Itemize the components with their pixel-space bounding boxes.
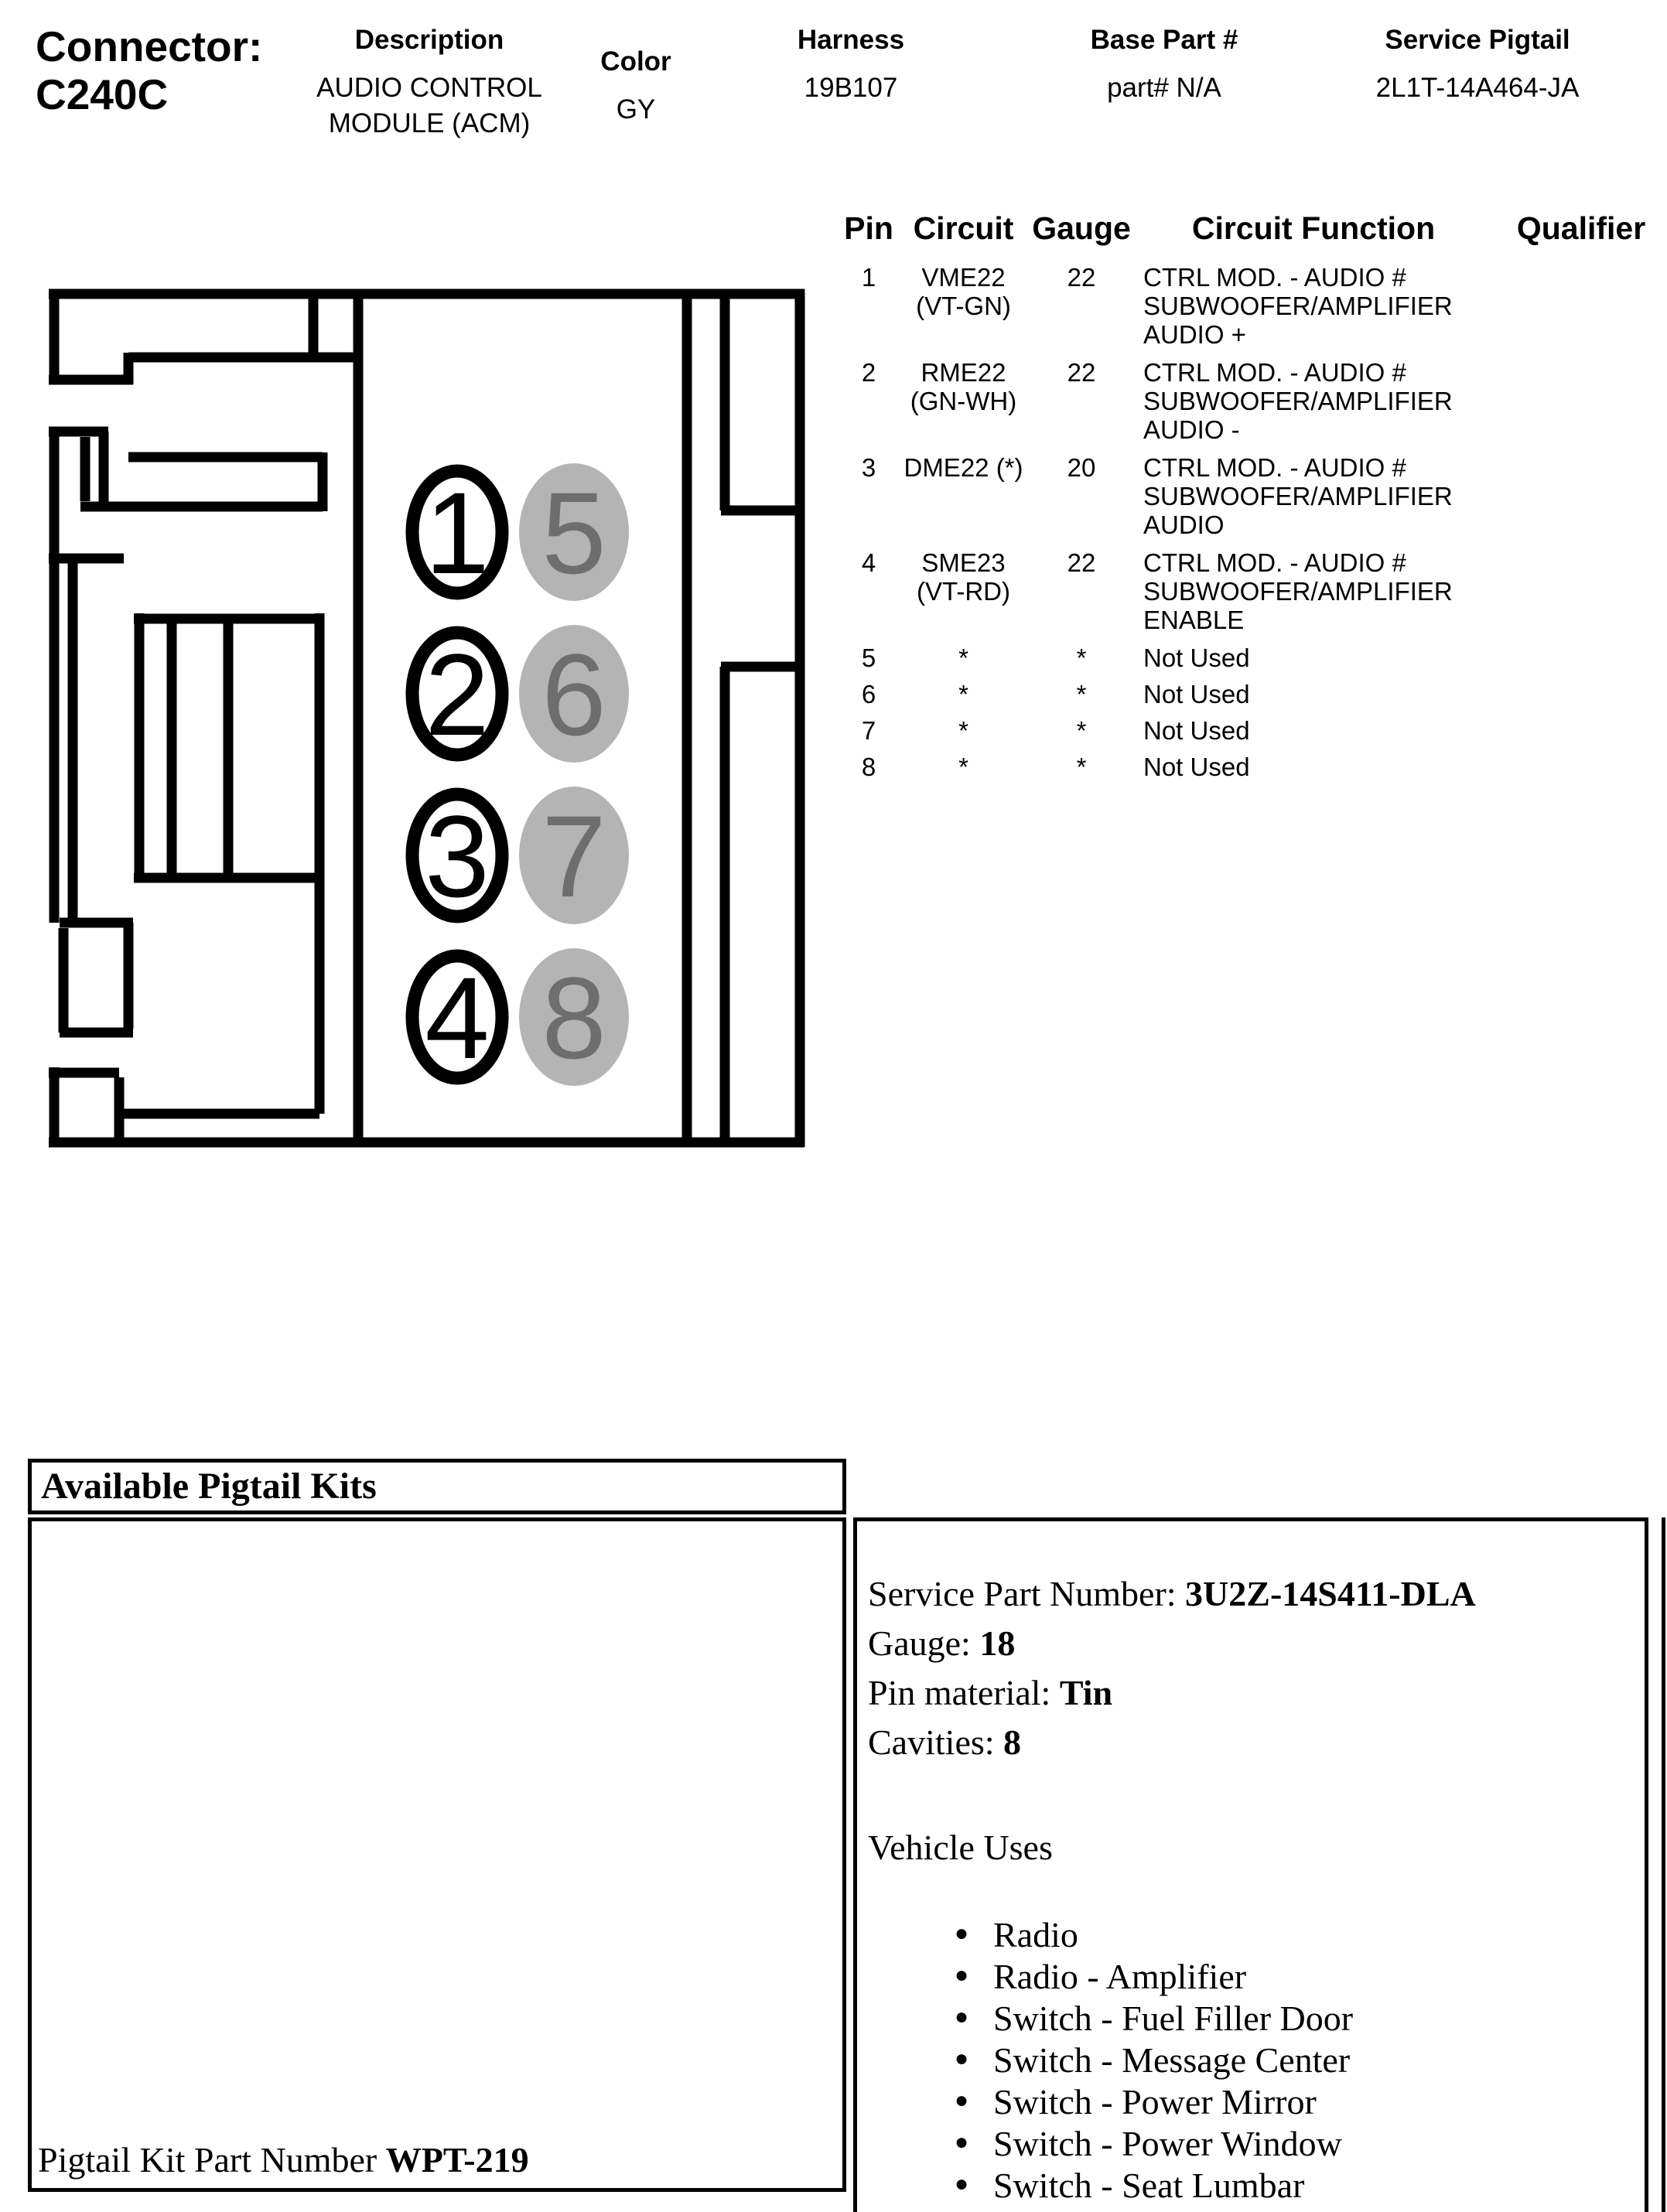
- vehicle-use-text: Switch - Power Mirror: [993, 2082, 1317, 2122]
- circuit-cell: VME22(VT-GN): [896, 263, 1031, 349]
- pin-table-row: 7**Not Used: [842, 716, 1667, 745]
- connector-pinout-sheet: Connector: C240C Description AUDIO CONTR…: [0, 0, 1667, 2212]
- pin-table-row: 1VME22(VT-GN)22CTRL MOD. - AUDIO #SUBWOO…: [842, 263, 1667, 349]
- available-pigtail-kits-title: Available Pigtail Kits: [32, 1463, 842, 1511]
- service-pigtail-label: Service Pigtail: [1346, 25, 1609, 56]
- vehicle-use-item: ●Switch - Power Mirror: [868, 2081, 1632, 2123]
- pin-material-label: Pin material:: [868, 1673, 1060, 1712]
- bullet-icon: ●: [955, 2038, 968, 2080]
- circuit-cell: *: [896, 753, 1031, 781]
- pigtail-kit-part-number-value: WPT-219: [386, 2140, 529, 2180]
- bullet-icon: ●: [955, 1913, 968, 1954]
- gauge-line: Gauge: 18: [868, 1619, 1632, 1668]
- connector-diagram: 51627384: [31, 272, 820, 1158]
- harness-value: 19B107: [743, 73, 959, 104]
- circuit-function-cell: CTRL MOD. - AUDIO #SUBWOOFER/AMPLIFIERAU…: [1132, 358, 1495, 444]
- circuit-function-cell: Not Used: [1132, 753, 1495, 781]
- rear-cavity-number-6: 6: [541, 630, 606, 760]
- rear-cavity-number-5: 5: [541, 468, 606, 598]
- rear-cavity-number-8: 8: [541, 953, 606, 1083]
- cavities-value: 8: [1003, 1722, 1021, 1762]
- circuit-cell: RME22(GN-WH): [896, 358, 1031, 444]
- gauge-cell: *: [1031, 643, 1132, 672]
- vehicle-use-item: ●Switch - Message Center: [868, 2040, 1632, 2081]
- circuit-function-col-header: Circuit Function: [1132, 210, 1495, 246]
- front-cavity-number-1: 1: [425, 468, 489, 598]
- bullet-icon: ●: [955, 2163, 968, 2205]
- service-part-number-label: Service Part Number:: [868, 1574, 1185, 1613]
- circuit-function-cell: Not Used: [1132, 643, 1495, 672]
- bullet-icon: ●: [955, 2205, 968, 2212]
- gauge-cell: *: [1031, 753, 1132, 781]
- pin-table-row: 5**Not Used: [842, 643, 1667, 672]
- pin-material-value: Tin: [1060, 1673, 1112, 1712]
- vehicle-use-item: ●Switch - Power Window: [868, 2123, 1632, 2165]
- pigtail-kit-box: Pigtail Kit Part Number WPT-219: [28, 1517, 846, 2192]
- pigtail-kit-part-number-line: Pigtail Kit Part Number WPT-219: [38, 2139, 529, 2180]
- vehicle-use-text: Switch - Seat Lumbar: [993, 2166, 1304, 2205]
- circuit-function-cell: Not Used: [1132, 680, 1495, 708]
- gauge-value: 18: [979, 1623, 1015, 1663]
- circuit-col-header: Circuit: [896, 210, 1031, 246]
- pin-col-header: Pin: [842, 210, 896, 246]
- base-part-value: part# N/A: [1040, 73, 1288, 104]
- pigtail-kit-part-number-label: Pigtail Kit Part Number: [38, 2140, 386, 2180]
- gauge-cell: 22: [1031, 263, 1132, 349]
- circuit-cell: *: [896, 716, 1031, 745]
- pin-table: Pin Circuit Gauge Circuit Function Quali…: [842, 210, 1667, 789]
- description-value-line1: AUDIO CONTROL: [298, 73, 561, 104]
- circuit-function-cell: CTRL MOD. - AUDIO #SUBWOOFER/AMPLIFIERAU…: [1132, 263, 1495, 349]
- qualifier-cell: [1495, 548, 1667, 634]
- vehicle-use-text: Radio - Amplifier: [993, 1957, 1246, 1996]
- description-label: Description: [298, 25, 561, 56]
- vehicle-use-item: ●Switch - Fuel Filler Door: [868, 1998, 1632, 2040]
- qualifier-cell: [1495, 453, 1667, 539]
- pin-table-body: 1VME22(VT-GN)22CTRL MOD. - AUDIO #SUBWOO…: [842, 263, 1667, 781]
- pin-number-cell: 4: [842, 548, 896, 634]
- pin-table-row: 3DME22 (*)20CTRL MOD. - AUDIO #SUBWOOFER…: [842, 453, 1667, 539]
- pin-table-row: 2RME22(GN-WH)22CTRL MOD. - AUDIO #SUBWOO…: [842, 358, 1667, 444]
- bullet-icon: ●: [955, 2122, 968, 2163]
- gauge-col-header: Gauge: [1031, 210, 1132, 246]
- pin-table-row: 4SME23(VT-RD)22CTRL MOD. - AUDIO #SUBWOO…: [842, 548, 1667, 634]
- vehicle-use-text: Switch - Power Window: [993, 2124, 1342, 2163]
- bullet-icon: ●: [955, 1954, 968, 1996]
- qualifier-cell: [1495, 643, 1667, 672]
- vehicle-use-text: Switch - Steering Column Tilt/Telescope: [993, 2207, 1574, 2212]
- front-cavity-number-4: 4: [425, 953, 489, 1083]
- cavities-line: Cavities: 8: [868, 1718, 1632, 1767]
- pin-table-row: 8**Not Used: [842, 753, 1667, 781]
- pin-number-cell: 7: [842, 716, 896, 745]
- connector-label: Connector:: [36, 23, 262, 70]
- cavities-label: Cavities:: [868, 1722, 1003, 1762]
- gauge-cell: 20: [1031, 453, 1132, 539]
- vehicle-use-item: ●Switch - Steering Column Tilt/Telescope: [868, 2207, 1632, 2212]
- gauge-label: Gauge:: [868, 1623, 979, 1663]
- circuit-function-cell: CTRL MOD. - AUDIO #SUBWOOFER/AMPLIFIEREN…: [1132, 548, 1495, 634]
- harness-label: Harness: [743, 25, 959, 56]
- connector-id: C240C: [36, 71, 168, 118]
- gauge-cell: *: [1031, 716, 1132, 745]
- pin-table-header-row: Pin Circuit Gauge Circuit Function Quali…: [842, 210, 1667, 246]
- service-part-number-line: Service Part Number: 3U2Z-14S411-DLA: [868, 1569, 1632, 1619]
- service-part-detail-box: Service Part Number: 3U2Z-14S411-DLA Gau…: [853, 1517, 1648, 2212]
- vehicle-use-text: Radio: [993, 1915, 1078, 1954]
- qualifier-cell: [1495, 358, 1667, 444]
- vehicle-use-item: ●Radio: [868, 1914, 1632, 1956]
- cavity-pin-glyphs: 51627384: [412, 463, 629, 1086]
- qualifier-cell: [1495, 753, 1667, 781]
- gauge-cell: 22: [1031, 548, 1132, 634]
- available-pigtail-kits-box: Available Pigtail Kits: [28, 1459, 846, 1514]
- qualifier-cell: [1495, 680, 1667, 708]
- circuit-function-cell: CTRL MOD. - AUDIO #SUBWOOFER/AMPLIFIERAU…: [1132, 453, 1495, 539]
- pin-number-cell: 1: [842, 263, 896, 349]
- pin-number-cell: 6: [842, 680, 896, 708]
- front-cavity-number-3: 3: [425, 791, 489, 921]
- pin-material-line: Pin material: Tin: [868, 1668, 1632, 1718]
- circuit-cell: DME22 (*): [896, 453, 1031, 539]
- pin-number-cell: 3: [842, 453, 896, 539]
- vehicle-use-item: ●Radio - Amplifier: [868, 1956, 1632, 1998]
- service-part-number-value: 3U2Z-14S411-DLA: [1185, 1574, 1476, 1613]
- circuit-cell: *: [896, 680, 1031, 708]
- pin-number-cell: 2: [842, 358, 896, 444]
- qualifier-cell: [1495, 263, 1667, 349]
- bullet-icon: ●: [955, 1996, 968, 2038]
- base-part-label: Base Part #: [1040, 25, 1288, 56]
- color-label: Color: [566, 46, 705, 77]
- rear-cavity-number-7: 7: [541, 791, 606, 921]
- gauge-cell: 22: [1031, 358, 1132, 444]
- pin-table-row: 6**Not Used: [842, 680, 1667, 708]
- qualifier-cell: [1495, 716, 1667, 745]
- vehicle-use-text: Switch - Message Center: [993, 2040, 1350, 2080]
- description-value-line2: MODULE (ACM): [298, 108, 561, 139]
- vehicle-use-text: Switch - Fuel Filler Door: [993, 1999, 1353, 2038]
- qualifier-col-header: Qualifier: [1495, 210, 1667, 246]
- gauge-cell: *: [1031, 680, 1132, 708]
- pin-number-cell: 8: [842, 753, 896, 781]
- vehicle-use-item: ●Switch - Seat Lumbar: [868, 2165, 1632, 2207]
- vehicle-uses-label: Vehicle Uses: [868, 1823, 1632, 1872]
- circuit-cell: *: [896, 643, 1031, 672]
- circuit-function-cell: Not Used: [1132, 716, 1495, 745]
- bullet-icon: ●: [955, 2080, 968, 2122]
- circuit-cell: SME23(VT-RD): [896, 548, 1031, 634]
- vehicle-uses-list: ●Radio●Radio - Amplifier●Switch - Fuel F…: [868, 1914, 1632, 2212]
- service-pigtail-value: 2L1T-14A464-JA: [1346, 73, 1609, 104]
- front-cavity-number-2: 2: [425, 630, 489, 760]
- color-value: GY: [566, 94, 705, 125]
- detail-box-outer-border: [1662, 1517, 1665, 2212]
- pin-number-cell: 5: [842, 643, 896, 672]
